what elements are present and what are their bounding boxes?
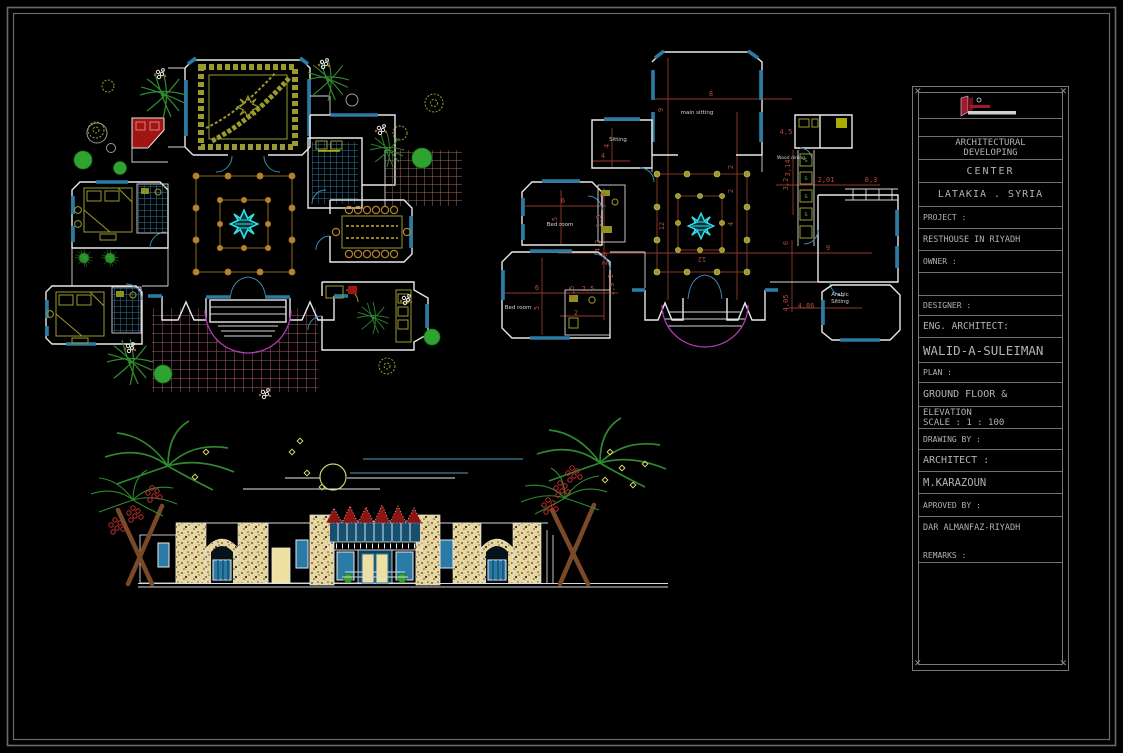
entry-bush-right <box>398 574 407 583</box>
right-room <box>804 195 898 296</box>
cad-sheet: GGGG <box>0 0 1123 753</box>
svg-text:3,14: 3,14 <box>784 160 792 177</box>
entry-door-right <box>376 554 388 583</box>
majlis-room <box>185 58 310 172</box>
approved-label-row: APROVED BY : <box>919 494 1062 517</box>
approved-value-row: DAR ALMANFAZ-RIYADH <box>919 517 1062 548</box>
org-name-line2: DEVELOPING <box>963 148 1017 158</box>
arch-bay <box>481 539 513 583</box>
entry-bush-left <box>344 574 353 583</box>
carpet <box>201 67 295 147</box>
wc-rooms <box>795 115 852 160</box>
svg-text:2,5: 2,5 <box>582 285 595 293</box>
left-floor-plan <box>46 58 462 399</box>
svg-text:6: 6 <box>782 241 790 245</box>
room-label-sitting: Sitting <box>609 137 627 143</box>
svg-text:1,5: 1,5 <box>568 286 576 299</box>
kitchen-tiled <box>308 138 362 208</box>
drawing-by-name-row: M.KARAZOUN <box>919 472 1062 494</box>
svg-text:12: 12 <box>658 222 666 230</box>
eng-architect-row: ENG. ARCHITECT: <box>919 316 1062 338</box>
right-floor-plan: GGGG <box>502 51 900 347</box>
svg-text:0,3: 0,3 <box>865 176 878 184</box>
entry-door-left <box>362 554 374 583</box>
fountain <box>688 213 713 238</box>
elevation <box>91 418 668 587</box>
red-counter <box>132 118 168 162</box>
svg-text:8: 8 <box>709 90 713 98</box>
svg-text:5: 5 <box>551 217 559 221</box>
blank-row <box>919 273 1062 296</box>
dining-room <box>316 200 412 262</box>
drawing-by-label-row: DRAWING BY : <box>919 429 1062 450</box>
bathroom-1 <box>137 184 168 233</box>
svg-text:G: G <box>804 194 807 200</box>
courtyard-left <box>193 173 296 276</box>
fountain <box>230 210 258 238</box>
room-label-arabic-2: Sitting <box>831 299 849 305</box>
bathroom-2 <box>112 287 141 333</box>
svg-text:2: 2 <box>727 189 735 193</box>
project-value-row: RESTHOUSE IN RIYADH <box>919 229 1062 251</box>
entrance-crest <box>326 505 422 550</box>
plan-scale-row: ELEVATION SCALE : 1 : 100 <box>919 407 1062 429</box>
bedroom-bottom-left <box>502 251 610 338</box>
svg-text:12: 12 <box>698 255 706 263</box>
entrance <box>334 550 416 583</box>
plan-value-row: GROUND FLOOR & <box>919 383 1062 407</box>
svg-text:3,2: 3,2 <box>782 178 790 191</box>
svg-text:G: G <box>804 212 807 218</box>
svg-text:5: 5 <box>533 306 541 310</box>
blank-row <box>919 119 1062 137</box>
sitting-room <box>592 119 654 182</box>
svg-text:6: 6 <box>561 197 565 205</box>
dimension-labels: 8 9 4 4 4,5 3,14 3,2 2,01 0,3 6 5 2 1,5 … <box>533 90 877 317</box>
svg-text:4,05: 4,05 <box>782 295 790 312</box>
svg-text:2,01: 2,01 <box>818 176 835 184</box>
adc-logo <box>943 95 1039 117</box>
project-label-row: PROJECT : <box>919 207 1062 229</box>
remarks-empty-area <box>919 563 1062 664</box>
svg-text:4: 4 <box>603 144 611 148</box>
svg-text:2: 2 <box>727 165 735 169</box>
main-sitting-room <box>652 51 762 155</box>
svg-text:1,5: 1,5 <box>595 215 603 228</box>
svg-text:2: 2 <box>607 274 615 278</box>
bedroom-mid-left <box>522 181 602 245</box>
org-name: ARCHITECTURAL DEVELOPING <box>919 137 1062 160</box>
cabinet-strip: GGGG <box>798 150 814 246</box>
room-label-bed1: Bed room <box>547 222 574 228</box>
org-center: CENTER <box>919 160 1062 183</box>
svg-text:G: G <box>804 176 807 182</box>
designer-label-row: DESIGNER : <box>919 296 1062 316</box>
title-block: ✕ ✕ ✕ ✕ ARCHITECTURAL DEVELOPING CENTER … <box>912 86 1069 671</box>
palm-trees-right <box>521 418 666 584</box>
svg-text:2: 2 <box>574 309 578 317</box>
svg-text:9: 9 <box>826 244 830 252</box>
room-label-arabic-1: Arabic <box>831 292 848 298</box>
side-door <box>272 548 290 583</box>
svg-text:9: 9 <box>657 108 665 112</box>
entrance-porch-right <box>632 275 778 347</box>
svg-text:4,2: 4,2 <box>594 240 602 253</box>
bed <box>56 292 104 343</box>
drawing-by-role-row: ARCHITECT : <box>919 450 1062 472</box>
svg-text:4,86: 4,86 <box>798 302 815 310</box>
eng-architect-name: WALID-A-SULEIMAN <box>919 338 1062 363</box>
svg-text:4,5: 4,5 <box>780 128 793 136</box>
remarks-label-row: REMARKS : <box>919 548 1062 563</box>
svg-text:1,9: 1,9 <box>608 283 616 296</box>
room-label-bed2: Bed room <box>505 305 532 311</box>
arch-bay <box>206 539 238 583</box>
svg-text:2: 2 <box>599 193 607 197</box>
svg-text:2,8: 2,8 <box>601 253 609 266</box>
logo-row <box>919 93 1062 119</box>
room-label-main-sitting: main sitting <box>681 110 714 116</box>
svg-text:4: 4 <box>601 152 605 160</box>
plan-label-row: PLAN : <box>919 363 1062 383</box>
org-name-line1: ARCHITECTURAL <box>955 138 1025 148</box>
svg-text:6: 6 <box>535 284 539 292</box>
dimension-lines <box>502 58 880 335</box>
svg-text:4: 4 <box>727 222 735 226</box>
owner-label-row: OWNER : <box>919 251 1062 273</box>
bed <box>84 188 132 240</box>
org-location: LATAKIA . SYRIA <box>919 183 1062 207</box>
